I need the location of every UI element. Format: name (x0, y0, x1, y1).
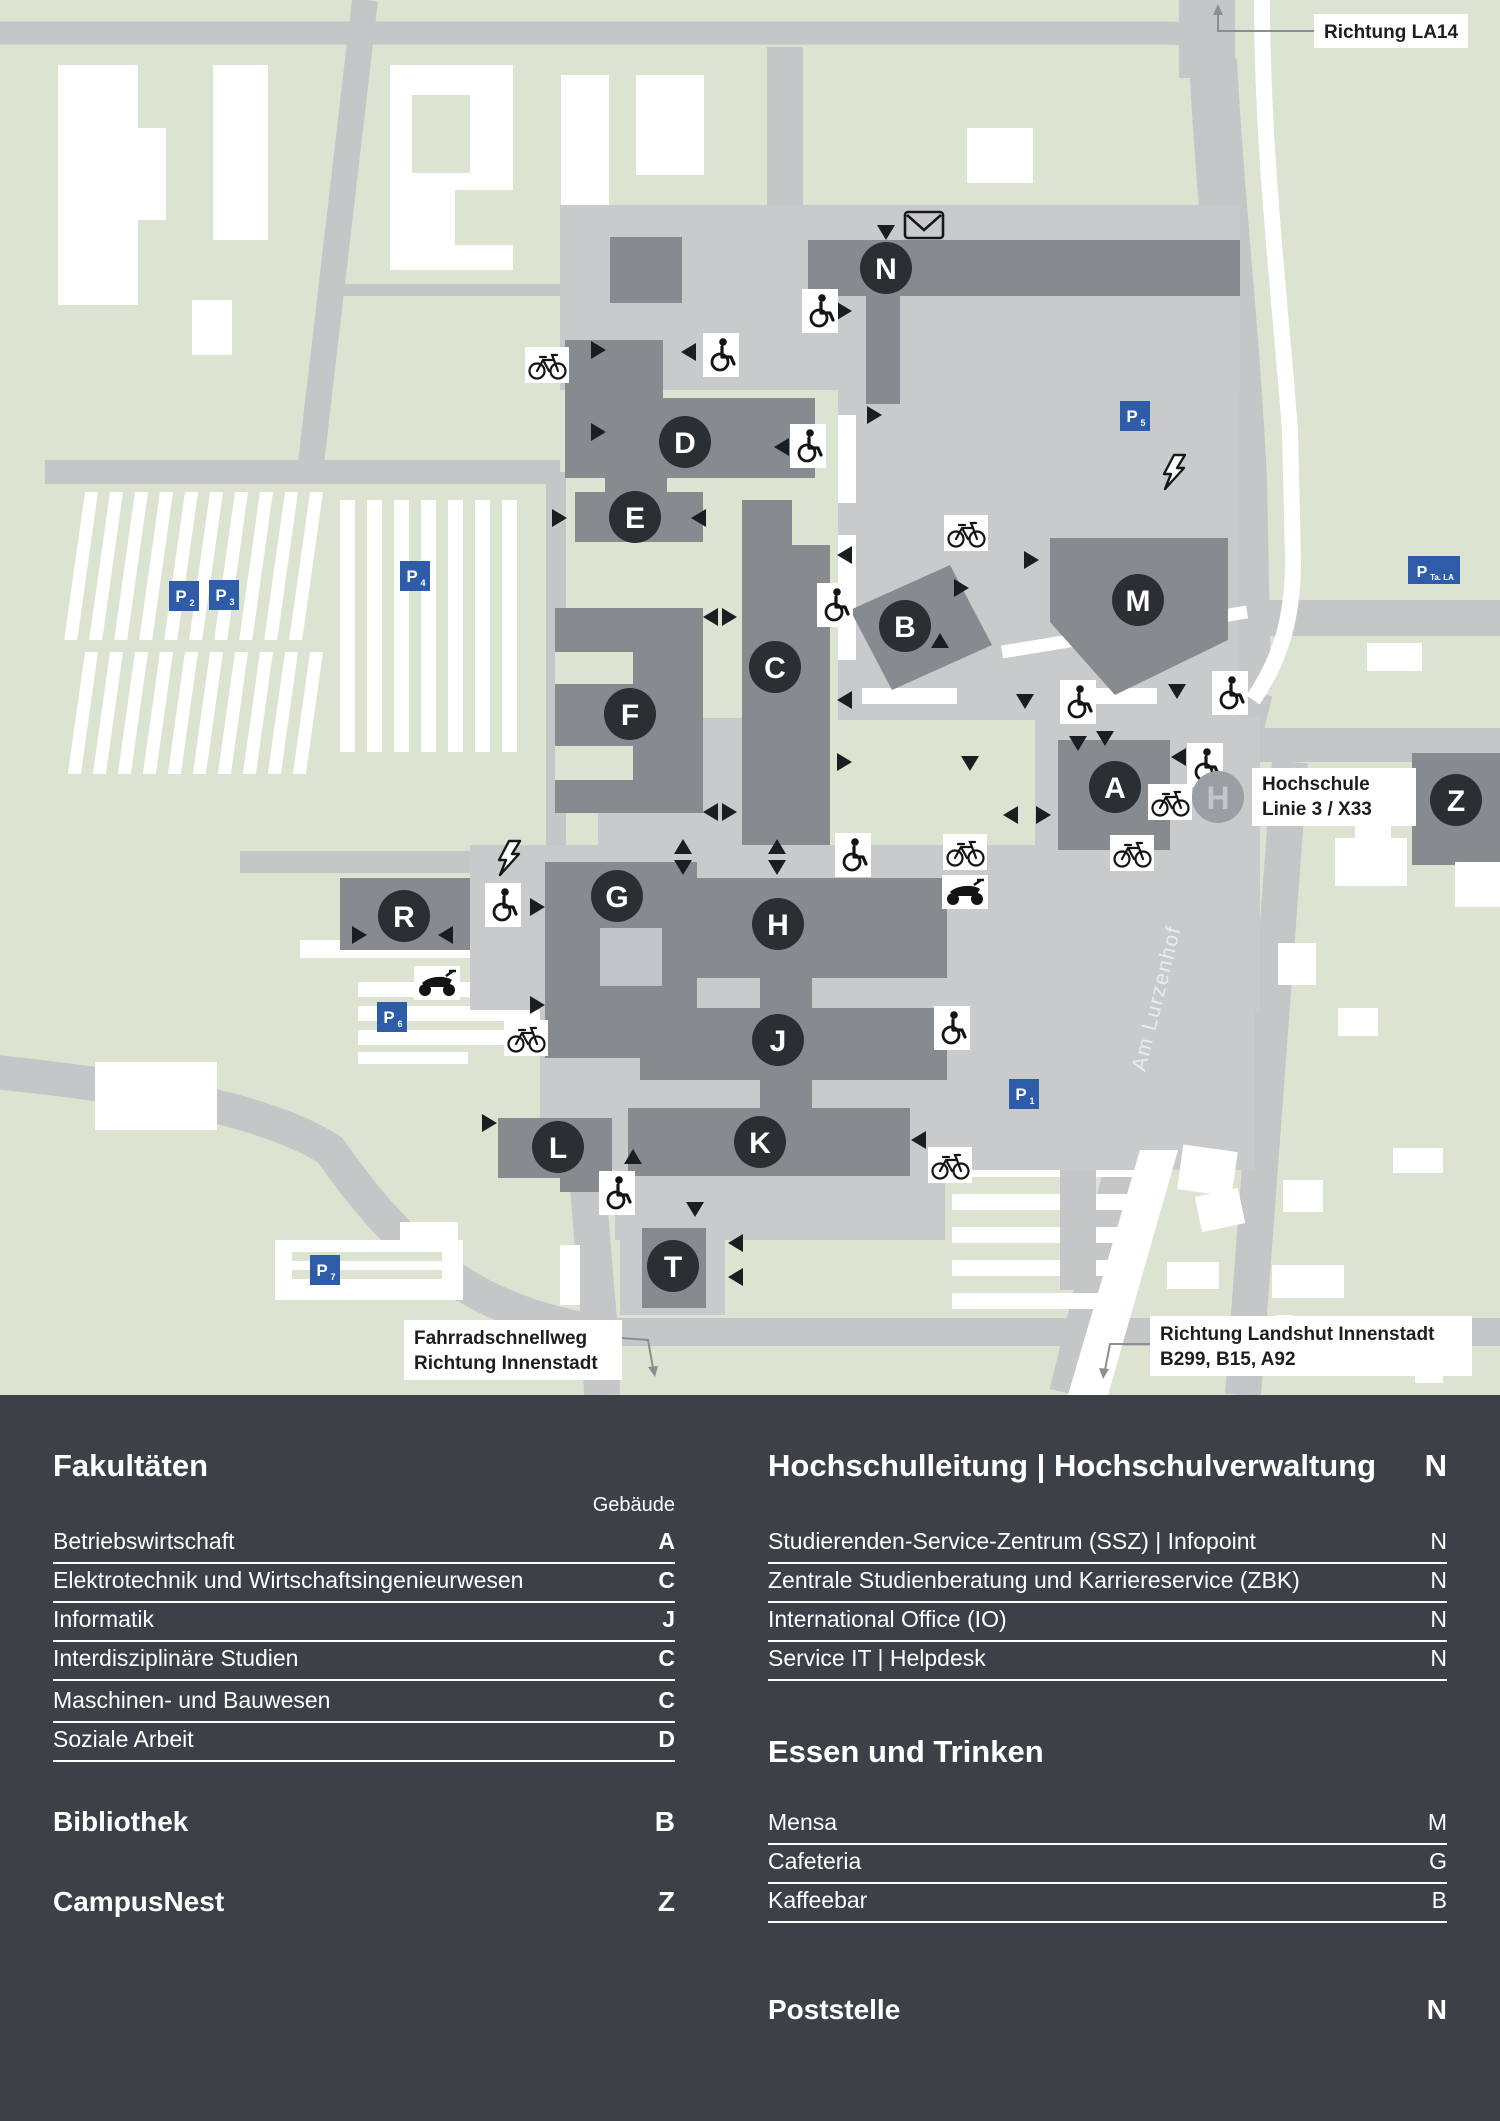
legend-section-bibliothek: Bibliothek B (53, 1806, 675, 1838)
bike-icon (1148, 784, 1192, 820)
wheelchair-icon (934, 1006, 970, 1050)
badge-A: A (1089, 761, 1141, 813)
parking-sign-p4: P4 (400, 561, 430, 591)
svg-text:6: 6 (397, 1019, 402, 1029)
legend-row-label: Cafeteria (768, 1848, 861, 1875)
svg-text:N: N (875, 253, 897, 286)
legend-right-title: Hochschulleitung | Hochschulverwaltung N (768, 1448, 1447, 1484)
legend-row-code: B (1432, 1887, 1447, 1914)
legend-section-code: B (655, 1806, 675, 1838)
legend-left-title: Fakultäten (53, 1448, 208, 1484)
badge-H: H (752, 898, 804, 950)
wheelchair-icon (790, 424, 826, 468)
legend-row-label: Kaffeebar (768, 1887, 867, 1914)
parking-sign-p1: P1 (1009, 1079, 1039, 1109)
svg-text:Richtung Landshut Innenstadt: Richtung Landshut Innenstadt (1160, 1324, 1435, 1345)
legend-section-essen: Essen und Trinken (768, 1734, 1044, 1770)
svg-text:H: H (767, 909, 789, 942)
campus-map-page: N D E B C F M A Z R G H J K L T P1 P2 P3… (0, 0, 1500, 2121)
legend-row: Soziale ArbeitD (53, 1726, 675, 1762)
badge-E: E (609, 491, 661, 543)
svg-text:2: 2 (189, 598, 194, 608)
legend-row-label: International Office (IO) (768, 1606, 1007, 1633)
parking-sign-p6: P6 (377, 1002, 407, 1032)
svg-text:3: 3 (229, 597, 234, 607)
legend-section-code: N (1427, 1994, 1447, 2026)
parking-sign-p7: P7 (310, 1255, 340, 1285)
svg-text:P: P (215, 586, 226, 605)
bike-icon (504, 1020, 548, 1056)
legend-row-label: Maschinen- und Bauwesen (53, 1687, 330, 1714)
legend-row-code: C (658, 1567, 675, 1594)
legend-row: MensaM (768, 1809, 1447, 1845)
svg-text:P: P (316, 1261, 327, 1280)
legend-row-code: J (662, 1606, 675, 1633)
legend-row: International Office (IO)N (768, 1606, 1447, 1642)
building-D-north (610, 237, 682, 303)
svg-text:C: C (764, 652, 786, 685)
legend-row-code: A (658, 1528, 675, 1555)
bike-icon (525, 347, 569, 383)
legend-row-label: Service IT | Helpdesk (768, 1645, 986, 1672)
legend-row-code: N (1430, 1645, 1447, 1672)
svg-text:Hochschule: Hochschule (1262, 774, 1370, 795)
svg-text:4: 4 (420, 578, 425, 588)
legend-row: CafeteriaG (768, 1848, 1447, 1884)
parking-sign-p2: P2 (169, 581, 199, 611)
svg-text:L: L (549, 1132, 567, 1165)
svg-text:5: 5 (1140, 418, 1145, 428)
svg-text:Linie 3 / X33: Linie 3 / X33 (1262, 799, 1372, 820)
legend-section-title: CampusNest (53, 1886, 224, 1918)
svg-text:F: F (621, 699, 639, 732)
svg-text:K: K (749, 1127, 771, 1160)
svg-text:J: J (770, 1025, 787, 1058)
badge-T: T (647, 1240, 699, 1292)
legend-row-code: N (1430, 1528, 1447, 1555)
wheelchair-icon (1212, 671, 1248, 715)
legend-row-code: N (1430, 1567, 1447, 1594)
svg-text:P: P (383, 1008, 394, 1027)
legend-row: InformatikJ (53, 1606, 675, 1642)
legend-row: Studierenden-Service-Zentrum (SSZ) | Inf… (768, 1528, 1447, 1564)
wheelchair-icon (599, 1171, 635, 1215)
motorcycle-icon (942, 875, 988, 909)
badge-B: B (879, 600, 931, 652)
parking-sign-p3: P3 (209, 580, 239, 610)
legend-section-code: N (1425, 1448, 1447, 1484)
bike-icon (944, 515, 988, 551)
wheelchair-icon (1060, 680, 1096, 724)
legend-section-campusnest: CampusNest Z (53, 1886, 675, 1918)
svg-text:M: M (1126, 585, 1151, 618)
svg-text:1: 1 (1029, 1096, 1034, 1106)
legend-section-title: Hochschulleitung | Hochschulverwaltung (768, 1448, 1376, 1484)
legend-row: Interdisziplinäre StudienC (53, 1645, 675, 1681)
bus-stop-symbol: H (1206, 780, 1229, 816)
legend-row-label: Informatik (53, 1606, 154, 1633)
legend-section-title: Bibliothek (53, 1806, 188, 1838)
svg-text:Z: Z (1447, 785, 1465, 818)
legend-row: KaffeebarB (768, 1887, 1447, 1923)
legend-row-code: G (1429, 1848, 1447, 1875)
motorcycle-icon (414, 966, 460, 1000)
parking-sign-tgla: PTa. LA (1408, 556, 1460, 584)
legend-row-label: Elektrotechnik und Wirtschaftsingenieurw… (53, 1567, 523, 1594)
legend-section-poststelle: Poststelle N (768, 1994, 1447, 2026)
badge-R: R (378, 890, 430, 942)
legend-row-code: N (1430, 1606, 1447, 1633)
legend-row-label: Interdisziplinäre Studien (53, 1645, 298, 1672)
parking-sign-p5: P5 (1120, 401, 1150, 431)
badge-G: G (591, 870, 643, 922)
svg-text:Fahrradschnellweg: Fahrradschnellweg (414, 1328, 587, 1349)
badge-F: F (604, 688, 656, 740)
badge-N: N (860, 242, 912, 294)
campus-map: N D E B C F M A Z R G H J K L T P1 P2 P3… (0, 0, 1500, 1395)
bus-stop: H Hochschule Linie 3 / X33 (1192, 768, 1416, 826)
wheelchair-icon (485, 883, 521, 927)
badge-J: J (752, 1014, 804, 1066)
badge-D: D (659, 416, 711, 468)
wheelchair-icon (703, 333, 739, 377)
svg-text:P: P (175, 587, 186, 606)
svg-text:Richtung LA14: Richtung LA14 (1324, 22, 1458, 43)
wheelchair-icon (817, 583, 853, 627)
building-H (697, 878, 947, 978)
wheelchair-icon (802, 289, 838, 333)
svg-text:E: E (625, 502, 645, 535)
svg-text:B: B (894, 611, 916, 644)
building-C (742, 545, 830, 845)
bike-icon (1110, 835, 1154, 871)
legend-row-code: D (658, 1726, 675, 1753)
legend-row: Elektrotechnik und Wirtschaftsingenieurw… (53, 1567, 675, 1603)
svg-text:Richtung Innenstadt: Richtung Innenstadt (414, 1353, 598, 1374)
legend-row: BetriebswirtschaftA (53, 1528, 675, 1564)
legend-column-note: Gebäude (53, 1494, 675, 1517)
svg-text:P: P (1417, 564, 1428, 581)
svg-text:Ta. LA: Ta. LA (1430, 573, 1454, 582)
legend-row-label: Soziale Arbeit (53, 1726, 194, 1753)
legend-row-code: C (658, 1687, 675, 1714)
bike-icon (943, 834, 987, 870)
legend-row: Zentrale Studienberatung und Karriereser… (768, 1567, 1447, 1603)
svg-text:D: D (674, 427, 696, 460)
badge-L: L (532, 1121, 584, 1173)
legend-row: Maschinen- und BauwesenC (53, 1687, 675, 1723)
legend-row-label: Studierenden-Service-Zentrum (SSZ) | Inf… (768, 1528, 1256, 1555)
svg-text:P: P (406, 567, 417, 586)
legend-section-title: Poststelle (768, 1994, 900, 2026)
wheelchair-icon (835, 833, 871, 877)
svg-text:R: R (393, 901, 415, 934)
badge-Z: Z (1430, 774, 1482, 826)
legend-row-code: C (658, 1645, 675, 1672)
svg-text:P: P (1126, 407, 1137, 426)
legend-row-label: Betriebswirtschaft (53, 1528, 235, 1555)
svg-text:T: T (664, 1251, 682, 1284)
svg-text:B299, B15, A92: B299, B15, A92 (1160, 1349, 1296, 1370)
legend-row: Service IT | HelpdeskN (768, 1645, 1447, 1681)
badge-M: M (1112, 574, 1164, 626)
badge-C: C (749, 641, 801, 693)
legend-row-code: M (1428, 1809, 1447, 1836)
svg-text:A: A (1104, 772, 1126, 805)
bike-icon (928, 1147, 972, 1183)
svg-text:P: P (1015, 1085, 1026, 1104)
svg-text:7: 7 (330, 1272, 335, 1282)
legend-section-code: Z (658, 1886, 675, 1918)
legend-row-label: Zentrale Studienberatung und Karriereser… (768, 1567, 1300, 1594)
svg-text:G: G (605, 881, 628, 914)
badge-K: K (734, 1116, 786, 1168)
legend-row-label: Mensa (768, 1809, 837, 1836)
